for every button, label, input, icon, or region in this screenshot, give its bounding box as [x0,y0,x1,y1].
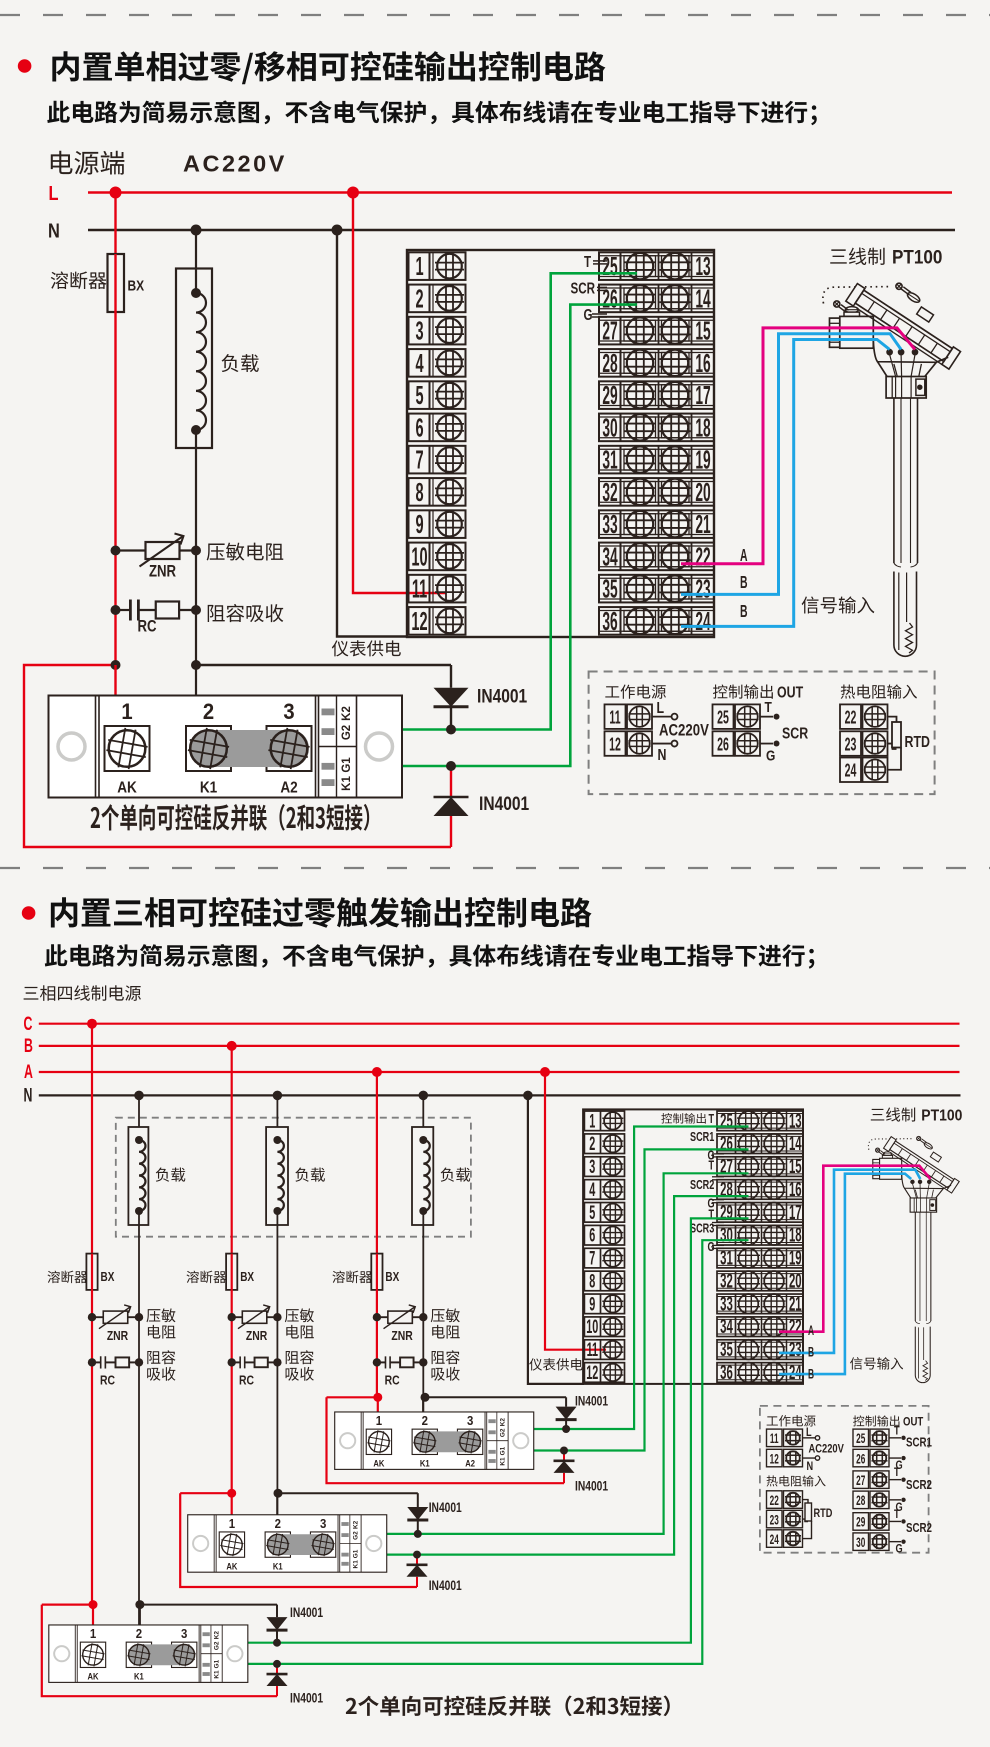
svg-text:K1: K1 [352,1560,359,1569]
svg-text:N: N [658,746,667,764]
svg-text:AK: AK [373,1458,384,1469]
svg-text:31: 31 [602,446,617,475]
svg-text:B: B [808,1346,814,1361]
svg-text:IN4001: IN4001 [575,1393,608,1409]
svg-text:35: 35 [602,575,617,604]
svg-text:SCR: SCR [782,724,808,742]
svg-text:N: N [807,1461,814,1473]
svg-text:14: 14 [695,285,711,314]
svg-text:8: 8 [415,479,423,507]
svg-text:BX: BX [385,1271,399,1284]
svg-text:21: 21 [695,511,710,540]
svg-text:18: 18 [695,414,710,443]
svg-text:25: 25 [856,1432,866,1447]
svg-text:IN4001: IN4001 [575,1478,608,1494]
svg-text:G1: G1 [341,757,353,773]
svg-text:17: 17 [789,1202,802,1224]
svg-text:3: 3 [415,317,423,345]
svg-text:RC: RC [385,1373,400,1387]
svg-text:SCR: SCR [571,280,596,297]
svg-text:29: 29 [856,1516,866,1531]
svg-text:11: 11 [770,1432,779,1447]
svg-text:13: 13 [789,1110,802,1132]
svg-text:28: 28 [856,1494,866,1509]
svg-text:6: 6 [589,1226,595,1247]
svg-text:36: 36 [602,607,617,636]
svg-text:3: 3 [589,1157,595,1178]
svg-text:2: 2 [275,1516,282,1531]
svg-text:L: L [49,181,59,204]
svg-text:A2: A2 [465,1458,475,1469]
svg-text:ZNR: ZNR [107,1329,129,1343]
svg-text:22: 22 [770,1494,779,1509]
svg-text:L: L [657,699,665,717]
svg-text:ZNR: ZNR [246,1329,268,1343]
svg-text:5: 5 [589,1203,595,1224]
svg-text:T: T [709,1208,715,1222]
svg-text:34: 34 [720,1316,733,1338]
svg-text:K1: K1 [420,1458,430,1469]
svg-text:K1: K1 [341,776,353,791]
svg-text:G2: G2 [341,725,353,740]
svg-text:19: 19 [789,1247,802,1269]
svg-text:10: 10 [411,543,427,571]
svg-text:26: 26 [856,1452,866,1467]
svg-text:K1: K1 [214,1670,221,1679]
svg-text:T: T [709,1113,715,1127]
svg-text:3: 3 [181,1627,188,1642]
svg-text:10: 10 [586,1317,598,1338]
svg-text:K1: K1 [134,1671,144,1682]
svg-text:3: 3 [467,1414,474,1429]
svg-text:11: 11 [412,575,428,603]
svg-text:RC: RC [239,1373,254,1387]
svg-text:T: T [894,1467,900,1479]
svg-text:22: 22 [845,709,857,729]
svg-text:IN4001: IN4001 [290,1690,323,1706]
svg-text:20: 20 [789,1270,802,1292]
svg-text:26: 26 [602,285,617,314]
svg-text:4: 4 [589,1180,595,1201]
svg-text:12: 12 [609,736,621,756]
svg-text:BX: BX [128,277,145,294]
svg-text:2: 2 [415,285,423,313]
svg-text:30: 30 [602,414,617,443]
svg-text:AK: AK [226,1561,237,1572]
svg-text:3: 3 [283,699,294,724]
svg-text:36: 36 [720,1362,733,1384]
svg-text:11: 11 [587,1340,599,1361]
svg-text:G: G [708,1241,715,1255]
svg-text:G1: G1 [499,1446,506,1455]
svg-text:32: 32 [602,478,617,507]
svg-text:G2: G2 [352,1531,359,1540]
svg-text:19: 19 [695,446,710,475]
svg-text:T: T [894,1509,900,1521]
svg-text:1: 1 [376,1414,383,1429]
svg-text:AC220V: AC220V [659,721,709,740]
svg-text:3: 3 [320,1516,327,1531]
svg-text:K1: K1 [499,1457,506,1466]
svg-text:SCR2: SCR2 [690,1179,714,1193]
svg-text:5: 5 [415,382,423,410]
svg-text:A2: A2 [280,780,297,797]
svg-text:B: B [24,1035,33,1056]
svg-text:SCR1: SCR1 [690,1131,714,1145]
svg-text:13: 13 [695,253,710,282]
svg-text:23: 23 [770,1513,780,1528]
svg-text:K1: K1 [273,1561,283,1572]
svg-text:15: 15 [695,317,710,346]
svg-text:24: 24 [770,1533,780,1548]
svg-text:23: 23 [845,736,857,756]
svg-text:23: 23 [695,575,710,604]
svg-text:K2: K2 [214,1631,221,1640]
svg-text:K2: K2 [352,1520,359,1529]
svg-text:IN4001: IN4001 [479,793,530,815]
svg-text:4: 4 [415,350,423,378]
svg-text:SCR2: SCR2 [906,1522,932,1535]
svg-text:22: 22 [695,543,710,572]
svg-text:B: B [808,1368,814,1383]
svg-text:T: T [894,1426,900,1438]
svg-text:K2: K2 [341,706,353,721]
svg-text:16: 16 [695,349,710,378]
svg-text:27: 27 [602,317,617,346]
svg-text:SCR1: SCR1 [906,1436,932,1449]
svg-text:29: 29 [720,1202,733,1224]
svg-text:9: 9 [415,511,423,539]
svg-text:G2: G2 [499,1428,506,1437]
svg-text:K2: K2 [499,1418,506,1427]
svg-text:7: 7 [415,446,423,474]
svg-text:T: T [765,699,773,716]
svg-text:PT100: PT100 [921,1108,962,1125]
svg-text:AK: AK [87,1671,98,1682]
svg-text:24: 24 [845,762,857,782]
svg-text:A: A [740,546,748,566]
svg-text:14: 14 [789,1133,802,1155]
svg-text:12: 12 [586,1363,598,1384]
svg-text:18: 18 [789,1225,802,1247]
svg-text:6: 6 [415,414,423,442]
svg-text:30: 30 [720,1225,733,1247]
svg-text:IN4001: IN4001 [429,1578,462,1594]
svg-text:AC220V: AC220V [809,1442,845,1455]
svg-text:26: 26 [720,1133,733,1155]
svg-text:G: G [896,1544,903,1556]
svg-text:N: N [48,219,60,242]
svg-text:N: N [24,1085,33,1106]
svg-text:SCR2: SCR2 [906,1479,932,1492]
svg-text:17: 17 [695,382,710,411]
svg-text:BX: BX [101,1271,115,1284]
svg-text:30: 30 [856,1536,865,1551]
svg-text:SCR3: SCR3 [690,1222,714,1236]
svg-text:OUT: OUT [903,1416,924,1429]
svg-text:2: 2 [589,1134,595,1155]
svg-text:25: 25 [717,709,729,729]
svg-text:1: 1 [589,1111,595,1132]
svg-text:RTD: RTD [905,733,930,751]
svg-text:ZNR: ZNR [391,1329,413,1343]
svg-text:B: B [740,602,748,622]
svg-text:12: 12 [770,1452,779,1467]
svg-text:AC220V: AC220V [183,151,287,177]
svg-text:16: 16 [789,1179,802,1201]
svg-text:32: 32 [720,1270,733,1292]
svg-text:15: 15 [789,1156,802,1178]
svg-text:1: 1 [90,1627,97,1642]
svg-text:34: 34 [602,543,618,572]
svg-text:27: 27 [856,1474,865,1489]
svg-text:A: A [24,1062,33,1083]
svg-text:OUT: OUT [777,683,804,701]
svg-text:25: 25 [720,1110,733,1132]
svg-text:12: 12 [411,608,427,636]
svg-text:28: 28 [602,349,617,378]
svg-text:G: G [766,747,775,764]
svg-text:BX: BX [240,1271,254,1284]
svg-text:27: 27 [720,1156,733,1178]
svg-text:IN4001: IN4001 [477,685,528,707]
svg-text:26: 26 [717,736,729,756]
svg-text:G1: G1 [214,1659,221,1668]
svg-text:A: A [808,1324,815,1339]
svg-text:20: 20 [695,478,710,507]
svg-text:11: 11 [609,709,620,729]
svg-text:24: 24 [695,607,711,636]
svg-text:RTD: RTD [814,1508,833,1520]
svg-text:7: 7 [589,1249,595,1270]
svg-text:IN4001: IN4001 [290,1605,323,1621]
svg-text:2: 2 [203,699,214,724]
svg-text:1: 1 [415,253,423,281]
svg-text:AK: AK [117,780,137,797]
svg-text:T: T [584,253,592,270]
svg-text:PT100: PT100 [892,247,942,268]
svg-text:G2: G2 [214,1641,221,1650]
svg-text:22: 22 [789,1316,802,1338]
svg-text:35: 35 [720,1339,733,1361]
svg-text:L: L [806,1427,812,1439]
svg-text:ZNR: ZNR [149,562,176,581]
svg-text:C: C [24,1013,33,1034]
svg-text:9: 9 [589,1294,595,1315]
svg-text:23: 23 [789,1339,802,1361]
svg-text:33: 33 [720,1293,733,1315]
svg-text:1: 1 [229,1516,236,1531]
svg-text:2: 2 [136,1627,143,1642]
svg-text:33: 33 [602,511,617,540]
svg-text:G1: G1 [352,1549,359,1558]
svg-text:RC: RC [100,1373,115,1387]
svg-text:31: 31 [720,1247,733,1269]
svg-text:IN4001: IN4001 [429,1500,462,1516]
svg-text:8: 8 [589,1271,595,1292]
svg-text:G: G [584,306,593,323]
svg-text:28: 28 [720,1179,733,1201]
svg-text:1: 1 [121,699,132,724]
svg-text:B: B [740,573,748,593]
svg-text:25: 25 [602,253,617,282]
svg-text:21: 21 [789,1293,802,1315]
svg-text:T: T [709,1159,715,1173]
svg-text:2: 2 [422,1414,429,1429]
svg-text:RC: RC [137,617,156,636]
svg-text:K1: K1 [200,780,217,797]
svg-text:29: 29 [602,382,617,411]
